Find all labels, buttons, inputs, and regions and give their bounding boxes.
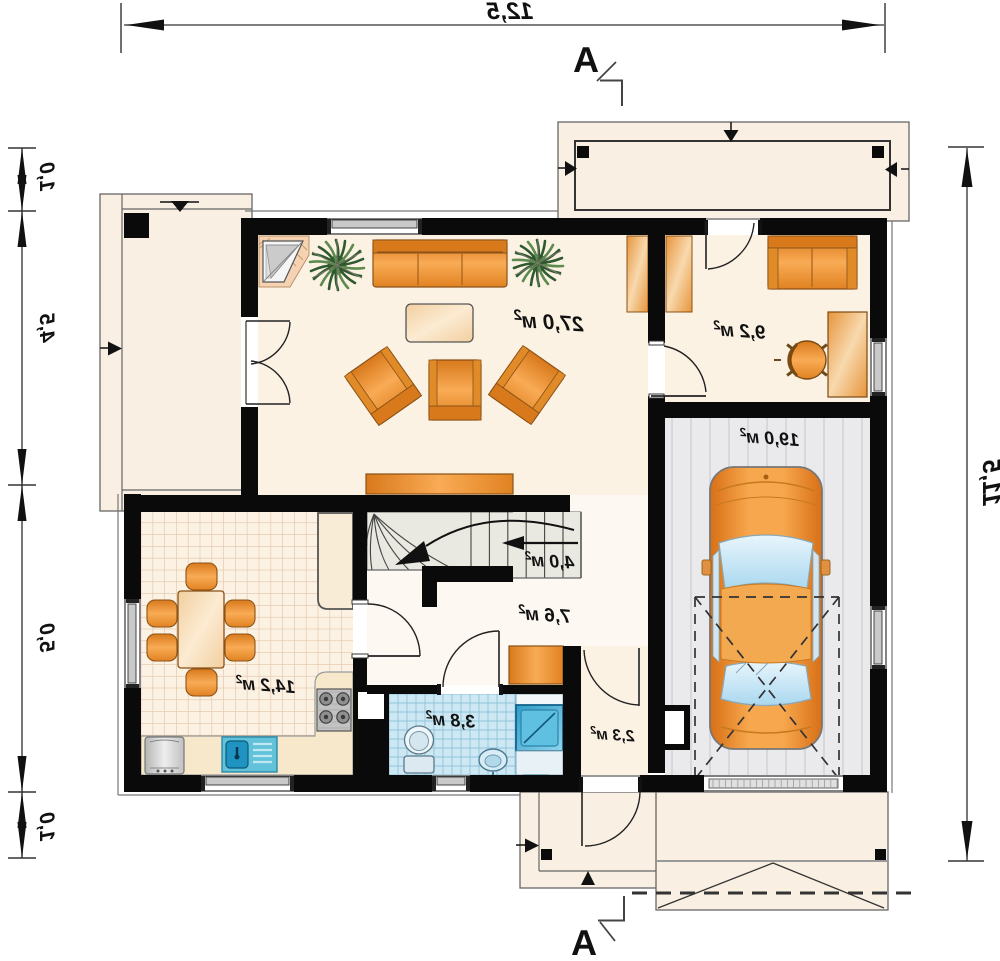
- svg-text:5,0: 5,0: [35, 623, 58, 653]
- svg-text:4,0 м2: 4,0 м2: [523, 548, 576, 573]
- svg-text:1,0: 1,0: [35, 812, 58, 842]
- svg-text:14,2 м2: 14,2 м2: [234, 672, 296, 697]
- svg-text:A: A: [571, 922, 597, 956]
- svg-text:1,0: 1,0: [35, 162, 58, 192]
- svg-text:A: A: [573, 39, 599, 80]
- svg-text:4,5: 4,5: [35, 313, 58, 344]
- svg-text:12,5: 12,5: [486, 0, 533, 25]
- svg-text:3,8 м2: 3,8 м2: [424, 707, 476, 731]
- svg-text:19,0 м2: 19,0 м2: [738, 425, 800, 450]
- svg-text:11,5: 11,5: [977, 459, 1000, 507]
- svg-text:2,3 м2: 2,3 м2: [589, 724, 636, 745]
